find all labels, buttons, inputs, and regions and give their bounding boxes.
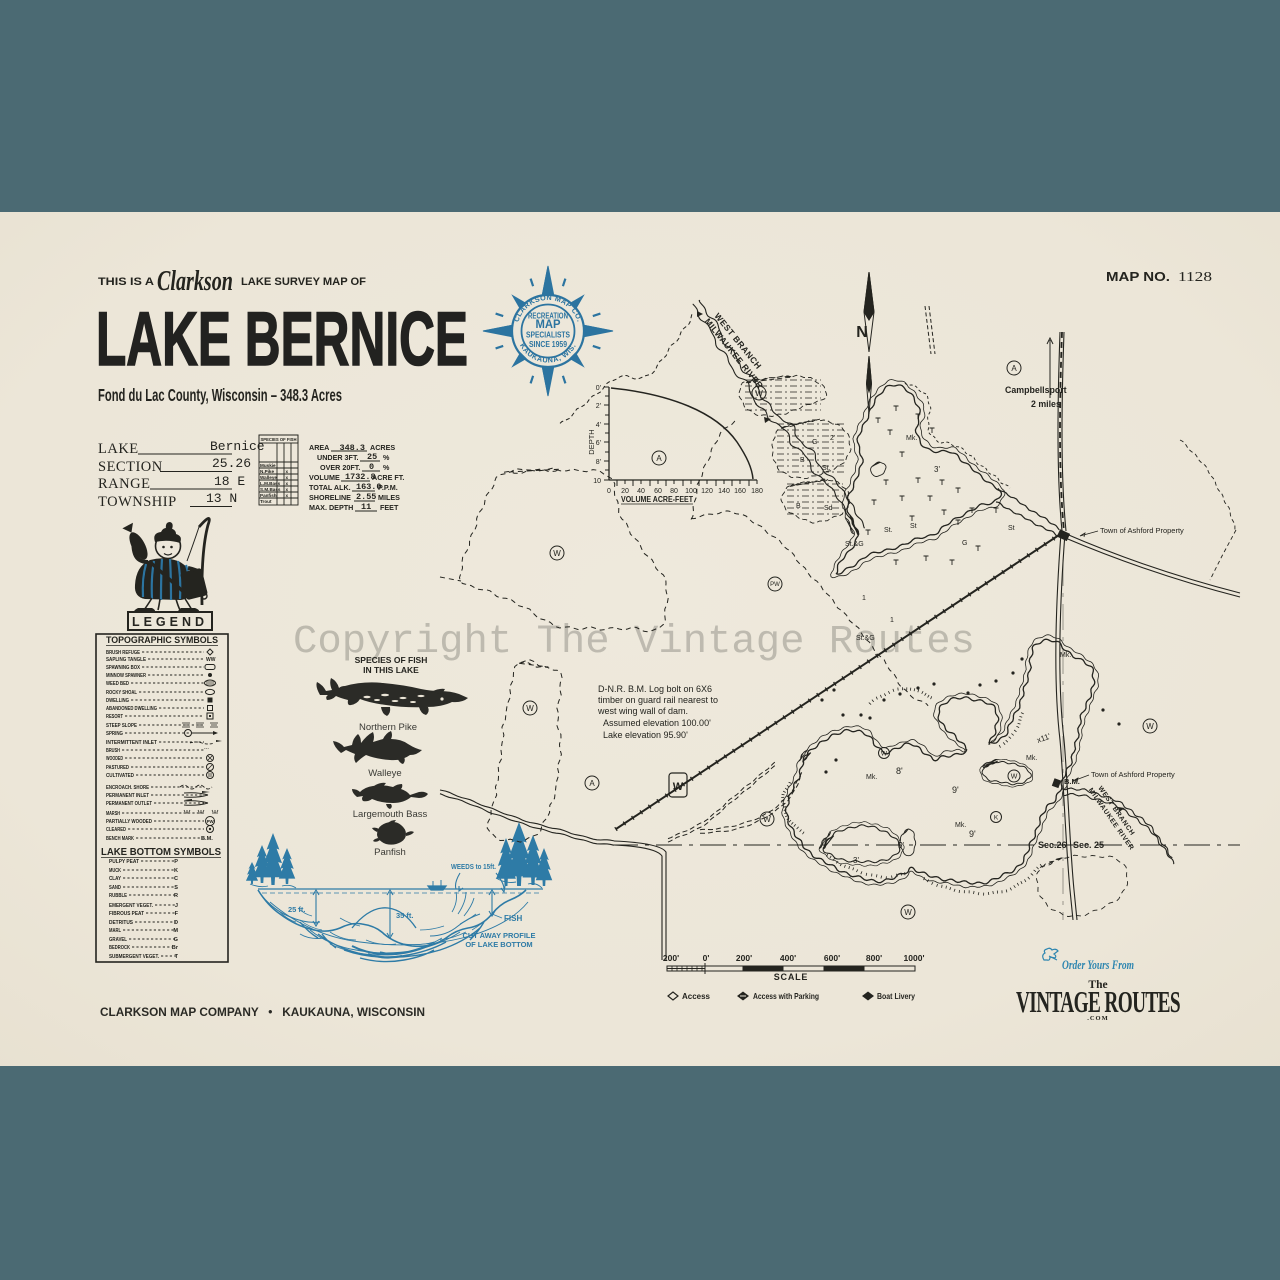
- svg-text:180: 180: [751, 488, 763, 495]
- svg-text:SECTION: SECTION: [98, 459, 163, 475]
- svg-text:SPECIALISTS: SPECIALISTS: [526, 331, 570, 340]
- svg-text:60: 60: [654, 488, 662, 495]
- svg-text:140: 140: [718, 488, 730, 495]
- svg-text:Assumed elevation 100.00': Assumed elevation 100.00': [603, 718, 711, 728]
- svg-text:K: K: [174, 868, 178, 874]
- svg-text:Mk.: Mk.: [866, 774, 877, 781]
- svg-text:%: %: [383, 453, 390, 462]
- svg-text:1000': 1000': [904, 953, 925, 963]
- svg-text:Access with Parking: Access with Parking: [753, 992, 819, 1001]
- svg-text:MAP NO.: MAP NO.: [1106, 269, 1170, 284]
- svg-text:ENCROACH. SHORE: ENCROACH. SHORE: [106, 785, 149, 791]
- svg-text:348.3: 348.3: [339, 443, 365, 453]
- svg-text:Northern Pike: Northern Pike: [359, 722, 417, 733]
- svg-text:P.P.M.: P.P.M.: [378, 483, 398, 492]
- svg-text:0: 0: [369, 462, 374, 472]
- svg-text:B.M.: B.M.: [1064, 777, 1080, 786]
- svg-text:20: 20: [621, 488, 629, 495]
- svg-text:LAKE BOTTOM SYMBOLS: LAKE BOTTOM SYMBOLS: [101, 846, 221, 858]
- svg-text:SCALE: SCALE: [774, 972, 809, 982]
- svg-text:Campbellsport: Campbellsport: [1005, 385, 1067, 395]
- svg-text:Walleye: Walleye: [368, 768, 401, 779]
- svg-text:Largemouth Bass: Largemouth Bass: [353, 809, 428, 820]
- svg-text:400': 400': [780, 953, 796, 963]
- svg-text:SPAWNING BOX: SPAWNING BOX: [106, 665, 140, 671]
- svg-text:OF LAKE BOTTOM: OF LAKE BOTTOM: [465, 940, 532, 949]
- svg-text:Boat Livery: Boat Livery: [877, 992, 915, 1001]
- svg-text:LAKE SURVEY MAP OF: LAKE SURVEY MAP OF: [241, 276, 366, 288]
- svg-text:BEDROCK: BEDROCK: [109, 945, 130, 951]
- svg-text:x: x: [286, 481, 289, 486]
- svg-text:LAKE: LAKE: [98, 441, 139, 457]
- svg-text:PASTURED: PASTURED: [106, 765, 129, 771]
- svg-text:SAPLING TANGLE: SAPLING TANGLE: [106, 657, 146, 663]
- svg-text:MILES: MILES: [378, 493, 400, 502]
- svg-text:VOLUME: VOLUME: [309, 473, 340, 482]
- svg-text:W: W: [755, 389, 763, 398]
- svg-text:Access: Access: [682, 992, 710, 1001]
- svg-text:W: W: [881, 750, 888, 757]
- svg-text:18 E: 18 E: [214, 474, 245, 489]
- svg-text:W: W: [904, 908, 912, 917]
- svg-text:100: 100: [685, 488, 697, 495]
- svg-text:SAND: SAND: [109, 885, 121, 891]
- svg-text:VINTAGE ROUTES: VINTAGE ROUTES: [1016, 984, 1180, 1019]
- svg-text:600': 600': [824, 953, 840, 963]
- svg-text:.COM: .COM: [1087, 1015, 1109, 1022]
- svg-text:W: W: [1011, 774, 1018, 781]
- svg-text:```: ```: [204, 748, 209, 754]
- svg-text:PERMANENT INLET: PERMANENT INLET: [106, 793, 149, 799]
- svg-text:PW: PW: [770, 582, 780, 588]
- svg-text:SINCE 1959: SINCE 1959: [529, 340, 568, 349]
- svg-text:W: W: [763, 815, 771, 824]
- svg-text:P: P: [174, 859, 178, 865]
- svg-text:Town of Ashford Property: Town of Ashford Property: [1100, 526, 1184, 535]
- svg-text:Sec. 25: Sec. 25: [1073, 840, 1104, 850]
- svg-text:RANGE: RANGE: [98, 476, 150, 492]
- svg-text:x: x: [286, 493, 289, 498]
- svg-text:800': 800': [866, 953, 882, 963]
- svg-text:B.M.: B.M.: [201, 836, 213, 842]
- svg-text:G: G: [174, 937, 178, 943]
- svg-text:MINNOW SPAWNER: MINNOW SPAWNER: [106, 673, 146, 679]
- svg-text:G: G: [962, 540, 967, 547]
- svg-text:west wing wall of dam.: west wing wall of dam.: [597, 706, 688, 716]
- svg-text:PULPY PEAT: PULPY PEAT: [109, 859, 140, 865]
- svg-text:MARSH: MARSH: [106, 811, 120, 817]
- svg-text:D: D: [174, 920, 178, 926]
- svg-text:x: x: [286, 487, 289, 492]
- svg-text:CUT AWAY PROFILE: CUT AWAY PROFILE: [462, 931, 535, 940]
- svg-text:A: A: [656, 454, 662, 463]
- svg-text:Sec.26: Sec.26: [1038, 840, 1067, 850]
- svg-text:5': 5': [898, 841, 904, 850]
- svg-text:1: 1: [890, 617, 894, 624]
- svg-text:Panfish: Panfish: [260, 493, 277, 498]
- svg-text:200': 200': [736, 953, 752, 963]
- svg-text:B: B: [796, 503, 801, 510]
- svg-text:Mk.: Mk.: [1026, 755, 1037, 762]
- svg-text:1128: 1128: [1178, 270, 1212, 285]
- svg-text:SPRING: SPRING: [106, 731, 123, 737]
- svg-text:PERMANENT OUTLET: PERMANENT OUTLET: [106, 801, 152, 807]
- svg-text:Lake elevation 95.90': Lake elevation 95.90': [603, 730, 688, 740]
- svg-text:10: 10: [593, 478, 601, 485]
- svg-text:BRUSH REFUGE: BRUSH REFUGE: [106, 650, 140, 656]
- svg-text:SHORELINE: SHORELINE: [309, 493, 351, 502]
- svg-text:GRAVEL: GRAVEL: [109, 937, 127, 943]
- svg-text:Mk.: Mk.: [906, 435, 917, 442]
- svg-text:Panfish: Panfish: [374, 847, 406, 858]
- svg-text:0': 0': [703, 953, 710, 963]
- svg-text:J: J: [175, 903, 178, 909]
- svg-text:ROCKY SHOAL: ROCKY SHOAL: [106, 690, 137, 696]
- svg-text:80: 80: [670, 488, 678, 495]
- svg-text:3': 3': [853, 856, 859, 865]
- svg-text:MAX. DEPTH: MAX. DEPTH: [309, 503, 353, 512]
- svg-text:CLEARED: CLEARED: [106, 827, 126, 833]
- svg-text:BRUSH: BRUSH: [106, 748, 120, 754]
- svg-text:%: %: [383, 463, 390, 472]
- svg-text:D-N.R. B.M. Log bolt on 6X6: D-N.R. B.M. Log bolt on 6X6: [598, 684, 712, 694]
- svg-text:RUBBLE: RUBBLE: [109, 893, 127, 899]
- svg-text:FEET: FEET: [380, 503, 399, 512]
- svg-text:CLARKSON MAP COMPANY • KAU: CLARKSON MAP COMPANY • KAUKAUNA, WISCONS…: [100, 1007, 425, 1019]
- svg-text:St.&G: St.&G: [845, 541, 864, 548]
- svg-text:RESORT: RESORT: [106, 714, 123, 720]
- svg-text:35 ft.: 35 ft.: [396, 911, 414, 920]
- svg-text:ACRE FT.: ACRE FT.: [372, 473, 404, 482]
- svg-text:St: St: [910, 523, 917, 530]
- svg-text:IN THIS LAKE: IN THIS LAKE: [363, 665, 419, 675]
- svg-text:Trout: Trout: [260, 499, 272, 504]
- svg-text:W: W: [526, 704, 534, 713]
- svg-text:LAKE BERNICE: LAKE BERNICE: [96, 297, 468, 382]
- svg-text:W: W: [553, 549, 561, 558]
- svg-text:M: M: [173, 928, 178, 934]
- svg-text:timber on guard rail nearest t: timber on guard rail nearest to: [598, 695, 718, 705]
- svg-text:Br: Br: [172, 945, 179, 951]
- svg-text:25 ft.: 25 ft.: [288, 905, 306, 914]
- svg-text:Muskie: Muskie: [260, 463, 276, 468]
- svg-text:25: 25: [367, 452, 377, 462]
- svg-text:W: W: [1146, 722, 1154, 731]
- svg-text:2.55: 2.55: [356, 492, 376, 502]
- svg-text:2': 2': [830, 435, 835, 442]
- svg-text:SPECIES OF FISH: SPECIES OF FISH: [355, 655, 428, 665]
- svg-text:WEEDS to 15ft.: WEEDS to 15ft.: [451, 864, 496, 871]
- svg-text:PARTIALLY WOODED: PARTIALLY WOODED: [106, 819, 152, 825]
- svg-text:Bernice: Bernice: [210, 439, 265, 454]
- svg-text:MUCK: MUCK: [109, 868, 121, 874]
- svg-text:St.: St.: [822, 465, 831, 472]
- svg-text:OVER 20FT.: OVER 20FT.: [320, 463, 360, 472]
- svg-text:Mk.: Mk.: [955, 822, 966, 829]
- svg-text:1: 1: [862, 595, 866, 602]
- svg-text:WW: WW: [206, 657, 216, 663]
- svg-text:St.&G: St.&G: [856, 635, 875, 642]
- svg-text:INTERMITTENT INLET: INTERMITTENT INLET: [106, 740, 158, 746]
- svg-text:ABANDONED DWELLING: ABANDONED DWELLING: [106, 706, 157, 712]
- svg-text:R: R: [174, 893, 178, 899]
- svg-text:THIS IS A: THIS IS A: [98, 276, 154, 288]
- svg-text:Order Yours From: Order Yours From: [1062, 958, 1134, 972]
- svg-text:A: A: [589, 779, 595, 788]
- svg-text:3': 3': [934, 465, 940, 474]
- svg-text:MAP: MAP: [536, 319, 561, 331]
- svg-text:W: W: [673, 781, 684, 793]
- svg-text:Mk.: Mk.: [1060, 652, 1071, 659]
- svg-text:STEEP SLOPE: STEEP SLOPE: [106, 723, 137, 729]
- svg-text:PW: PW: [207, 819, 215, 824]
- svg-text:EMERGENT VEGET.: EMERGENT VEGET.: [109, 903, 153, 909]
- svg-text:TOWNSHIP: TOWNSHIP: [98, 494, 177, 510]
- svg-text:St.: St.: [884, 527, 893, 534]
- svg-text:S: S: [174, 885, 178, 891]
- svg-text:4': 4': [596, 422, 601, 429]
- svg-text:B: B: [800, 457, 805, 464]
- svg-text:DWELLING: DWELLING: [106, 698, 129, 704]
- svg-text:120: 120: [701, 488, 713, 495]
- svg-text:MARL: MARL: [109, 928, 121, 934]
- svg-text:8': 8': [896, 766, 903, 776]
- svg-text:x: x: [286, 469, 289, 474]
- svg-text:Clarkson: Clarkson: [157, 265, 233, 297]
- svg-text:13 N: 13 N: [206, 491, 237, 506]
- svg-text:LEGEND: LEGEND: [132, 615, 208, 629]
- svg-text:G: G: [812, 439, 817, 446]
- svg-text:Sd: Sd: [824, 505, 833, 512]
- svg-text:L.M.Bass: L.M.Bass: [260, 481, 281, 486]
- svg-text:F: F: [175, 911, 179, 917]
- svg-text:UNDER 3FT.: UNDER 3FT.: [317, 453, 359, 462]
- svg-text:WEED BED: WEED BED: [106, 681, 129, 687]
- svg-text:St: St: [1008, 525, 1015, 532]
- svg-text:2 miles: 2 miles: [1031, 399, 1061, 409]
- svg-text:TOPOGRAPHIC SYMBOLS: TOPOGRAPHIC SYMBOLS: [106, 635, 218, 646]
- svg-text:9': 9': [952, 785, 959, 795]
- svg-text:CULTIVATED: CULTIVATED: [106, 773, 134, 779]
- svg-text:WOODED: WOODED: [106, 756, 123, 762]
- svg-text:CLAY: CLAY: [109, 876, 121, 882]
- svg-text:Walleye: Walleye: [260, 475, 277, 480]
- svg-text:TOTAL ALK.: TOTAL ALK.: [309, 483, 351, 492]
- svg-text:VOLUME ACRE-FEET: VOLUME ACRE-FEET: [621, 495, 693, 504]
- svg-text:x: x: [286, 475, 289, 480]
- svg-text:FIBROUS PEAT: FIBROUS PEAT: [109, 911, 144, 917]
- svg-text:C: C: [174, 876, 178, 882]
- svg-text:25.26: 25.26: [212, 456, 251, 471]
- svg-text:S.M.Bass: S.M.Bass: [260, 487, 281, 492]
- svg-text:0': 0': [596, 385, 601, 392]
- svg-text:SUBMERGENT VEGET.: SUBMERGENT VEGET.: [109, 954, 159, 960]
- svg-text:SPECIES OF FISH: SPECIES OF FISH: [261, 437, 298, 442]
- svg-text:T: T: [175, 954, 179, 960]
- svg-text:N.Pike: N.Pike: [260, 469, 274, 474]
- svg-text:40: 40: [637, 488, 645, 495]
- svg-text:DETRITUS: DETRITUS: [109, 920, 133, 926]
- svg-text:0: 0: [607, 488, 611, 495]
- svg-text:K: K: [994, 814, 999, 821]
- svg-text:2': 2': [596, 403, 601, 410]
- svg-text:Fond du Lac County, Wisconsin: Fond du Lac County, Wisconsin – 348.3 Ac…: [98, 385, 342, 405]
- svg-text:AREA: AREA: [309, 443, 329, 452]
- svg-text:FISH: FISH: [504, 914, 522, 923]
- svg-text:9': 9': [969, 829, 976, 839]
- svg-text:8': 8': [596, 459, 601, 466]
- svg-text:A: A: [1011, 364, 1017, 373]
- svg-text:6': 6': [596, 440, 601, 447]
- svg-text:200': 200': [663, 953, 679, 963]
- svg-text:N: N: [856, 324, 868, 341]
- svg-text:DEPTH: DEPTH: [587, 429, 596, 454]
- svg-text:11: 11: [361, 502, 371, 512]
- svg-text:Town of Ashford Property: Town of Ashford Property: [1091, 770, 1175, 779]
- svg-text:BENCH MARK: BENCH MARK: [106, 836, 134, 842]
- svg-text:160: 160: [734, 488, 746, 495]
- svg-text:ACRES: ACRES: [370, 443, 395, 452]
